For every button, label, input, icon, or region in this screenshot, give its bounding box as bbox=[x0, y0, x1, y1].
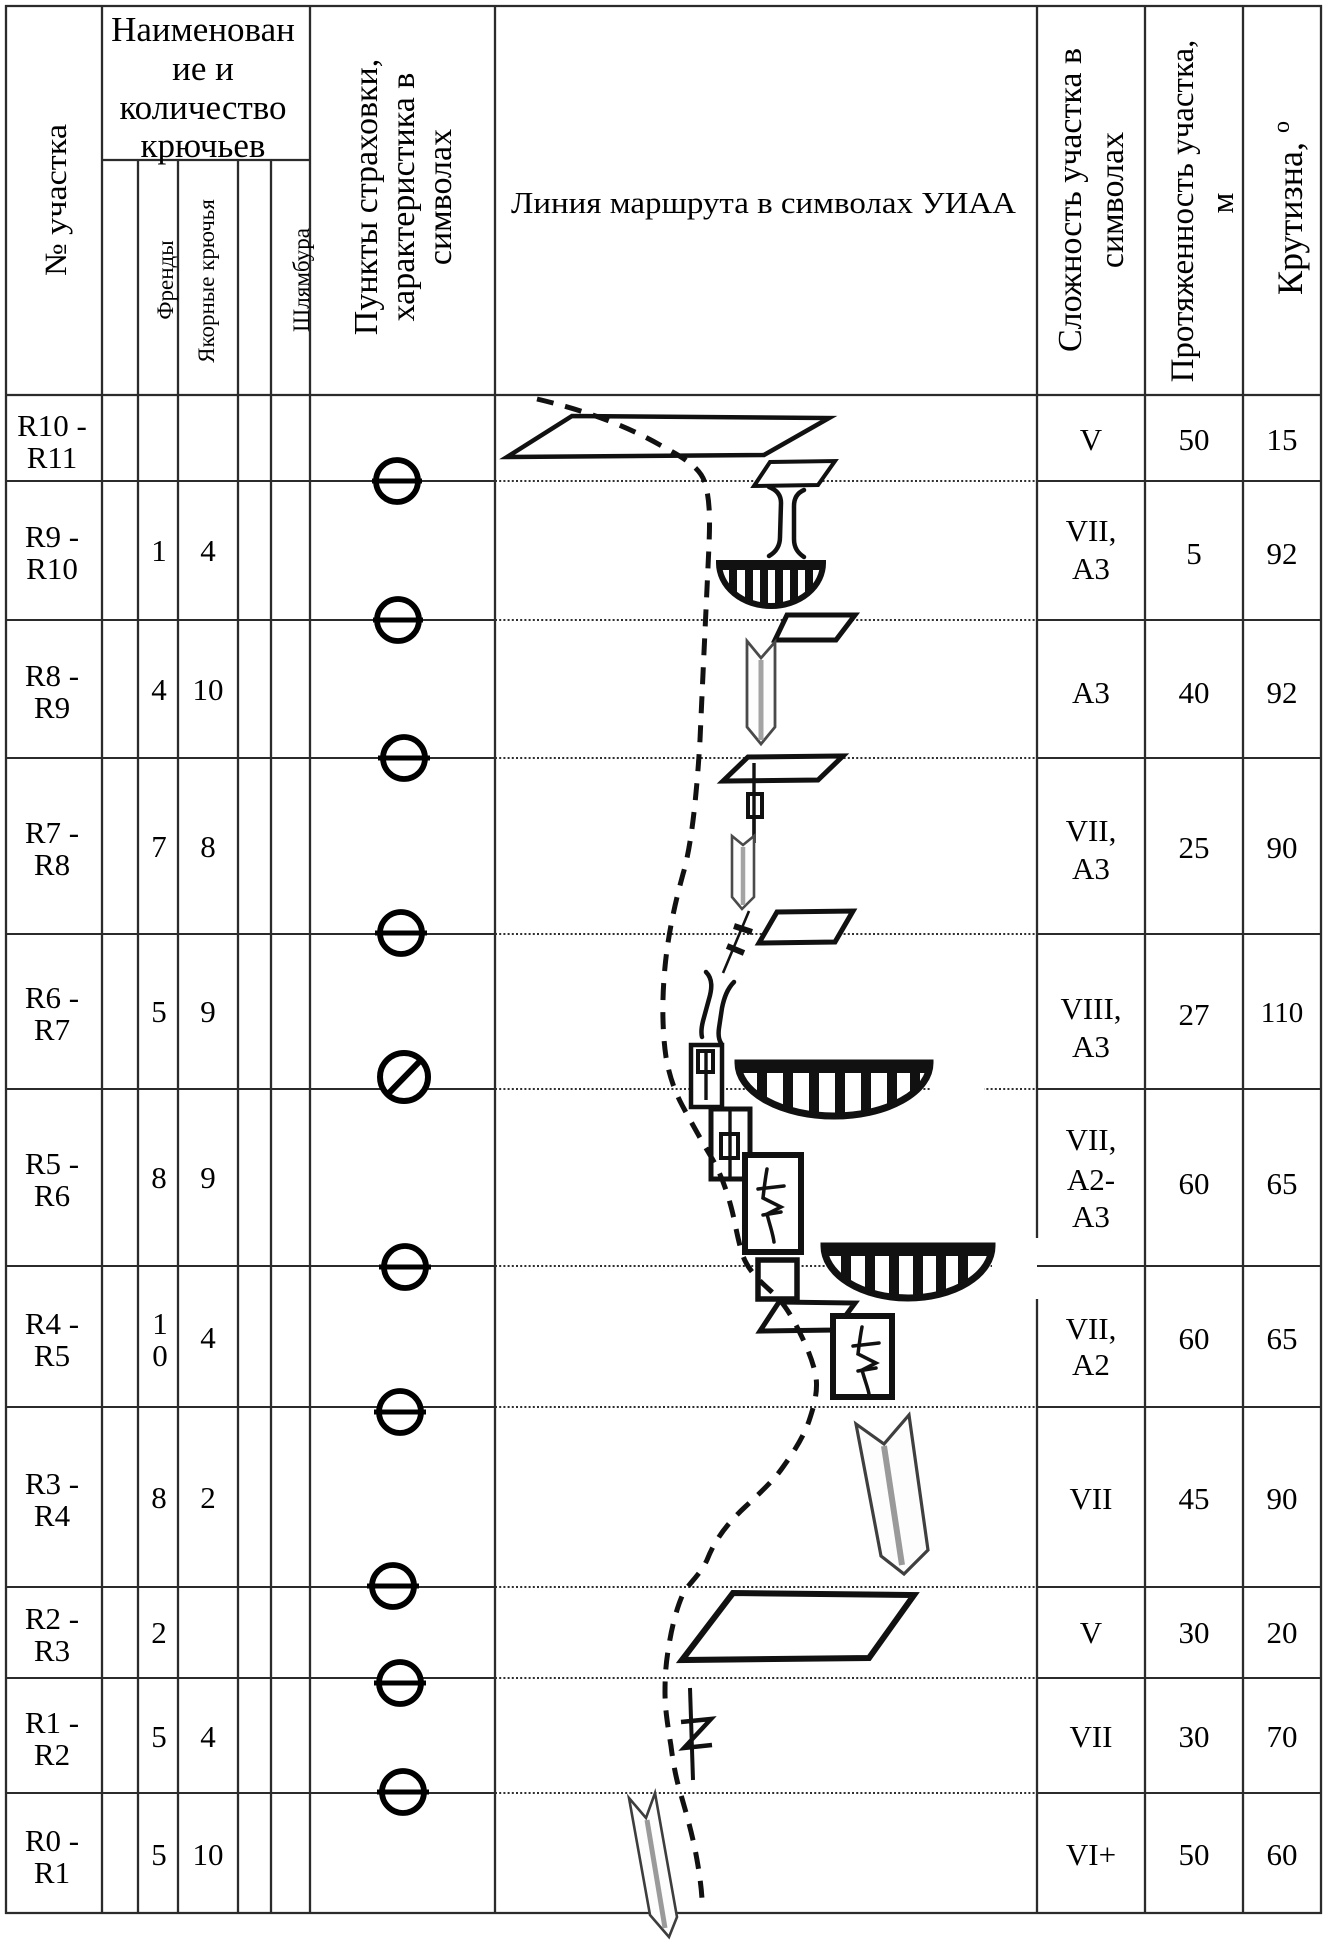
svg-text:2: 2 bbox=[200, 1480, 216, 1515]
svg-text:R8: R8 bbox=[34, 847, 70, 882]
svg-text:65: 65 bbox=[1267, 1166, 1298, 1201]
svg-text:V: V bbox=[1080, 1615, 1103, 1650]
svg-text:Шлямбура: Шлямбура bbox=[289, 228, 314, 332]
svg-text:92: 92 bbox=[1267, 536, 1298, 571]
svg-text:R5: R5 bbox=[34, 1338, 70, 1373]
svg-text:№ участка: № участка bbox=[38, 124, 73, 276]
svg-text:25: 25 bbox=[1179, 830, 1210, 865]
svg-text:Протяженность участка,: Протяженность участка, bbox=[1165, 40, 1201, 383]
svg-text:крючьев: крючьев bbox=[141, 126, 266, 165]
svg-text:VII,: VII, bbox=[1066, 1311, 1117, 1346]
svg-text:Линия маршрута в символах УИАА: Линия маршрута в символах УИАА bbox=[511, 185, 1017, 220]
svg-text:10: 10 bbox=[193, 1837, 224, 1872]
svg-text:R7: R7 bbox=[34, 1012, 70, 1047]
svg-text:20: 20 bbox=[1267, 1615, 1298, 1650]
svg-text:VII: VII bbox=[1069, 1481, 1112, 1516]
svg-text:Пункты страховки,: Пункты страховки, bbox=[348, 59, 385, 335]
svg-text:R10: R10 bbox=[26, 551, 78, 586]
svg-text:R10 -: R10 - bbox=[17, 408, 87, 443]
svg-text:VII,: VII, bbox=[1066, 1122, 1117, 1157]
svg-text:А3: А3 bbox=[1072, 1029, 1110, 1064]
svg-text:10: 10 bbox=[193, 672, 224, 707]
svg-text:7: 7 bbox=[151, 829, 167, 864]
svg-text:VI+: VI+ bbox=[1066, 1837, 1116, 1872]
svg-text:количество: количество bbox=[119, 88, 286, 127]
svg-text:символах: символах bbox=[1094, 132, 1131, 268]
svg-text:R3 -: R3 - bbox=[25, 1466, 79, 1501]
svg-text:30: 30 bbox=[1179, 1615, 1210, 1650]
svg-text:5: 5 bbox=[151, 994, 167, 1029]
svg-text:R4 -: R4 - bbox=[25, 1306, 79, 1341]
svg-text:4: 4 bbox=[200, 1320, 216, 1355]
svg-text:R3: R3 bbox=[34, 1633, 70, 1668]
svg-text:А2-: А2- bbox=[1067, 1162, 1115, 1197]
svg-text:А3: А3 bbox=[1072, 675, 1110, 710]
svg-text:27: 27 bbox=[1179, 997, 1210, 1032]
svg-text:60: 60 bbox=[1179, 1321, 1210, 1356]
svg-text:8: 8 bbox=[151, 1160, 167, 1195]
svg-text:0: 0 bbox=[152, 1338, 168, 1373]
svg-text:8: 8 bbox=[151, 1480, 167, 1515]
svg-text:А2: А2 bbox=[1072, 1347, 1110, 1382]
svg-text:1: 1 bbox=[152, 1306, 168, 1341]
svg-text:V: V bbox=[1080, 422, 1103, 457]
svg-text:Наименован: Наименован bbox=[111, 10, 295, 49]
svg-text:Крутизна, о: Крутизна, о bbox=[1269, 121, 1310, 295]
svg-text:символах: символах bbox=[422, 129, 459, 265]
svg-text:VIII,: VIII, bbox=[1060, 991, 1121, 1026]
svg-text:R1: R1 bbox=[34, 1855, 70, 1890]
svg-text:110: 110 bbox=[1261, 997, 1303, 1029]
svg-text:92: 92 bbox=[1267, 675, 1298, 710]
svg-text:VII,: VII, bbox=[1066, 513, 1117, 548]
svg-text:R2 -: R2 - bbox=[25, 1601, 79, 1636]
svg-text:А3: А3 bbox=[1072, 551, 1110, 586]
svg-text:65: 65 bbox=[1267, 1321, 1298, 1356]
svg-text:40: 40 bbox=[1179, 675, 1210, 710]
svg-text:30: 30 bbox=[1179, 1719, 1210, 1754]
svg-text:ие и: ие и bbox=[172, 49, 234, 88]
svg-text:R0 -: R0 - bbox=[25, 1823, 79, 1858]
svg-text:50: 50 bbox=[1179, 422, 1210, 457]
svg-text:1: 1 bbox=[151, 533, 167, 568]
svg-text:м: м bbox=[1205, 192, 1241, 213]
svg-text:VII,: VII, bbox=[1066, 813, 1117, 848]
svg-text:8: 8 bbox=[200, 829, 216, 864]
svg-text:9: 9 bbox=[200, 1160, 216, 1195]
svg-text:5: 5 bbox=[151, 1837, 167, 1872]
svg-text:R2: R2 bbox=[34, 1737, 70, 1772]
svg-text:R5 -: R5 - bbox=[25, 1146, 79, 1181]
svg-text:R7 -: R7 - bbox=[25, 815, 79, 850]
svg-text:характеристика в: характеристика в bbox=[385, 73, 422, 322]
svg-text:R4: R4 bbox=[34, 1498, 71, 1533]
svg-text:60: 60 bbox=[1267, 1837, 1298, 1872]
svg-text:2: 2 bbox=[151, 1615, 167, 1650]
svg-text:5: 5 bbox=[1186, 536, 1202, 571]
svg-text:R9 -: R9 - bbox=[25, 519, 79, 554]
svg-text:9: 9 bbox=[200, 994, 216, 1029]
svg-text:4: 4 bbox=[200, 533, 216, 568]
svg-text:50: 50 bbox=[1179, 1837, 1210, 1872]
svg-text:R6 -: R6 - bbox=[25, 980, 79, 1015]
svg-text:Сложность участка в: Сложность участка в bbox=[1052, 48, 1089, 352]
svg-text:R9: R9 bbox=[34, 690, 70, 725]
svg-text:А3: А3 bbox=[1072, 1199, 1110, 1234]
svg-text:R1 -: R1 - bbox=[25, 1705, 79, 1740]
svg-text:4: 4 bbox=[200, 1719, 216, 1754]
svg-text:VII: VII bbox=[1069, 1719, 1112, 1754]
svg-text:А3: А3 bbox=[1072, 851, 1110, 886]
svg-text:5: 5 bbox=[151, 1719, 167, 1754]
svg-text:45: 45 bbox=[1179, 1481, 1210, 1516]
svg-text:70: 70 bbox=[1267, 1719, 1298, 1754]
svg-text:R8 -: R8 - bbox=[25, 658, 79, 693]
svg-text:15: 15 bbox=[1267, 422, 1298, 457]
svg-text:90: 90 bbox=[1267, 830, 1298, 865]
svg-text:90: 90 bbox=[1267, 1481, 1298, 1516]
svg-text:4: 4 bbox=[151, 672, 167, 707]
svg-text:60: 60 bbox=[1179, 1166, 1210, 1201]
svg-text:Френды: Френды bbox=[153, 240, 178, 319]
svg-text:R11: R11 bbox=[27, 440, 78, 475]
svg-text:Якорные крючья: Якорные крючья bbox=[194, 199, 219, 363]
svg-text:R6: R6 bbox=[34, 1178, 70, 1213]
